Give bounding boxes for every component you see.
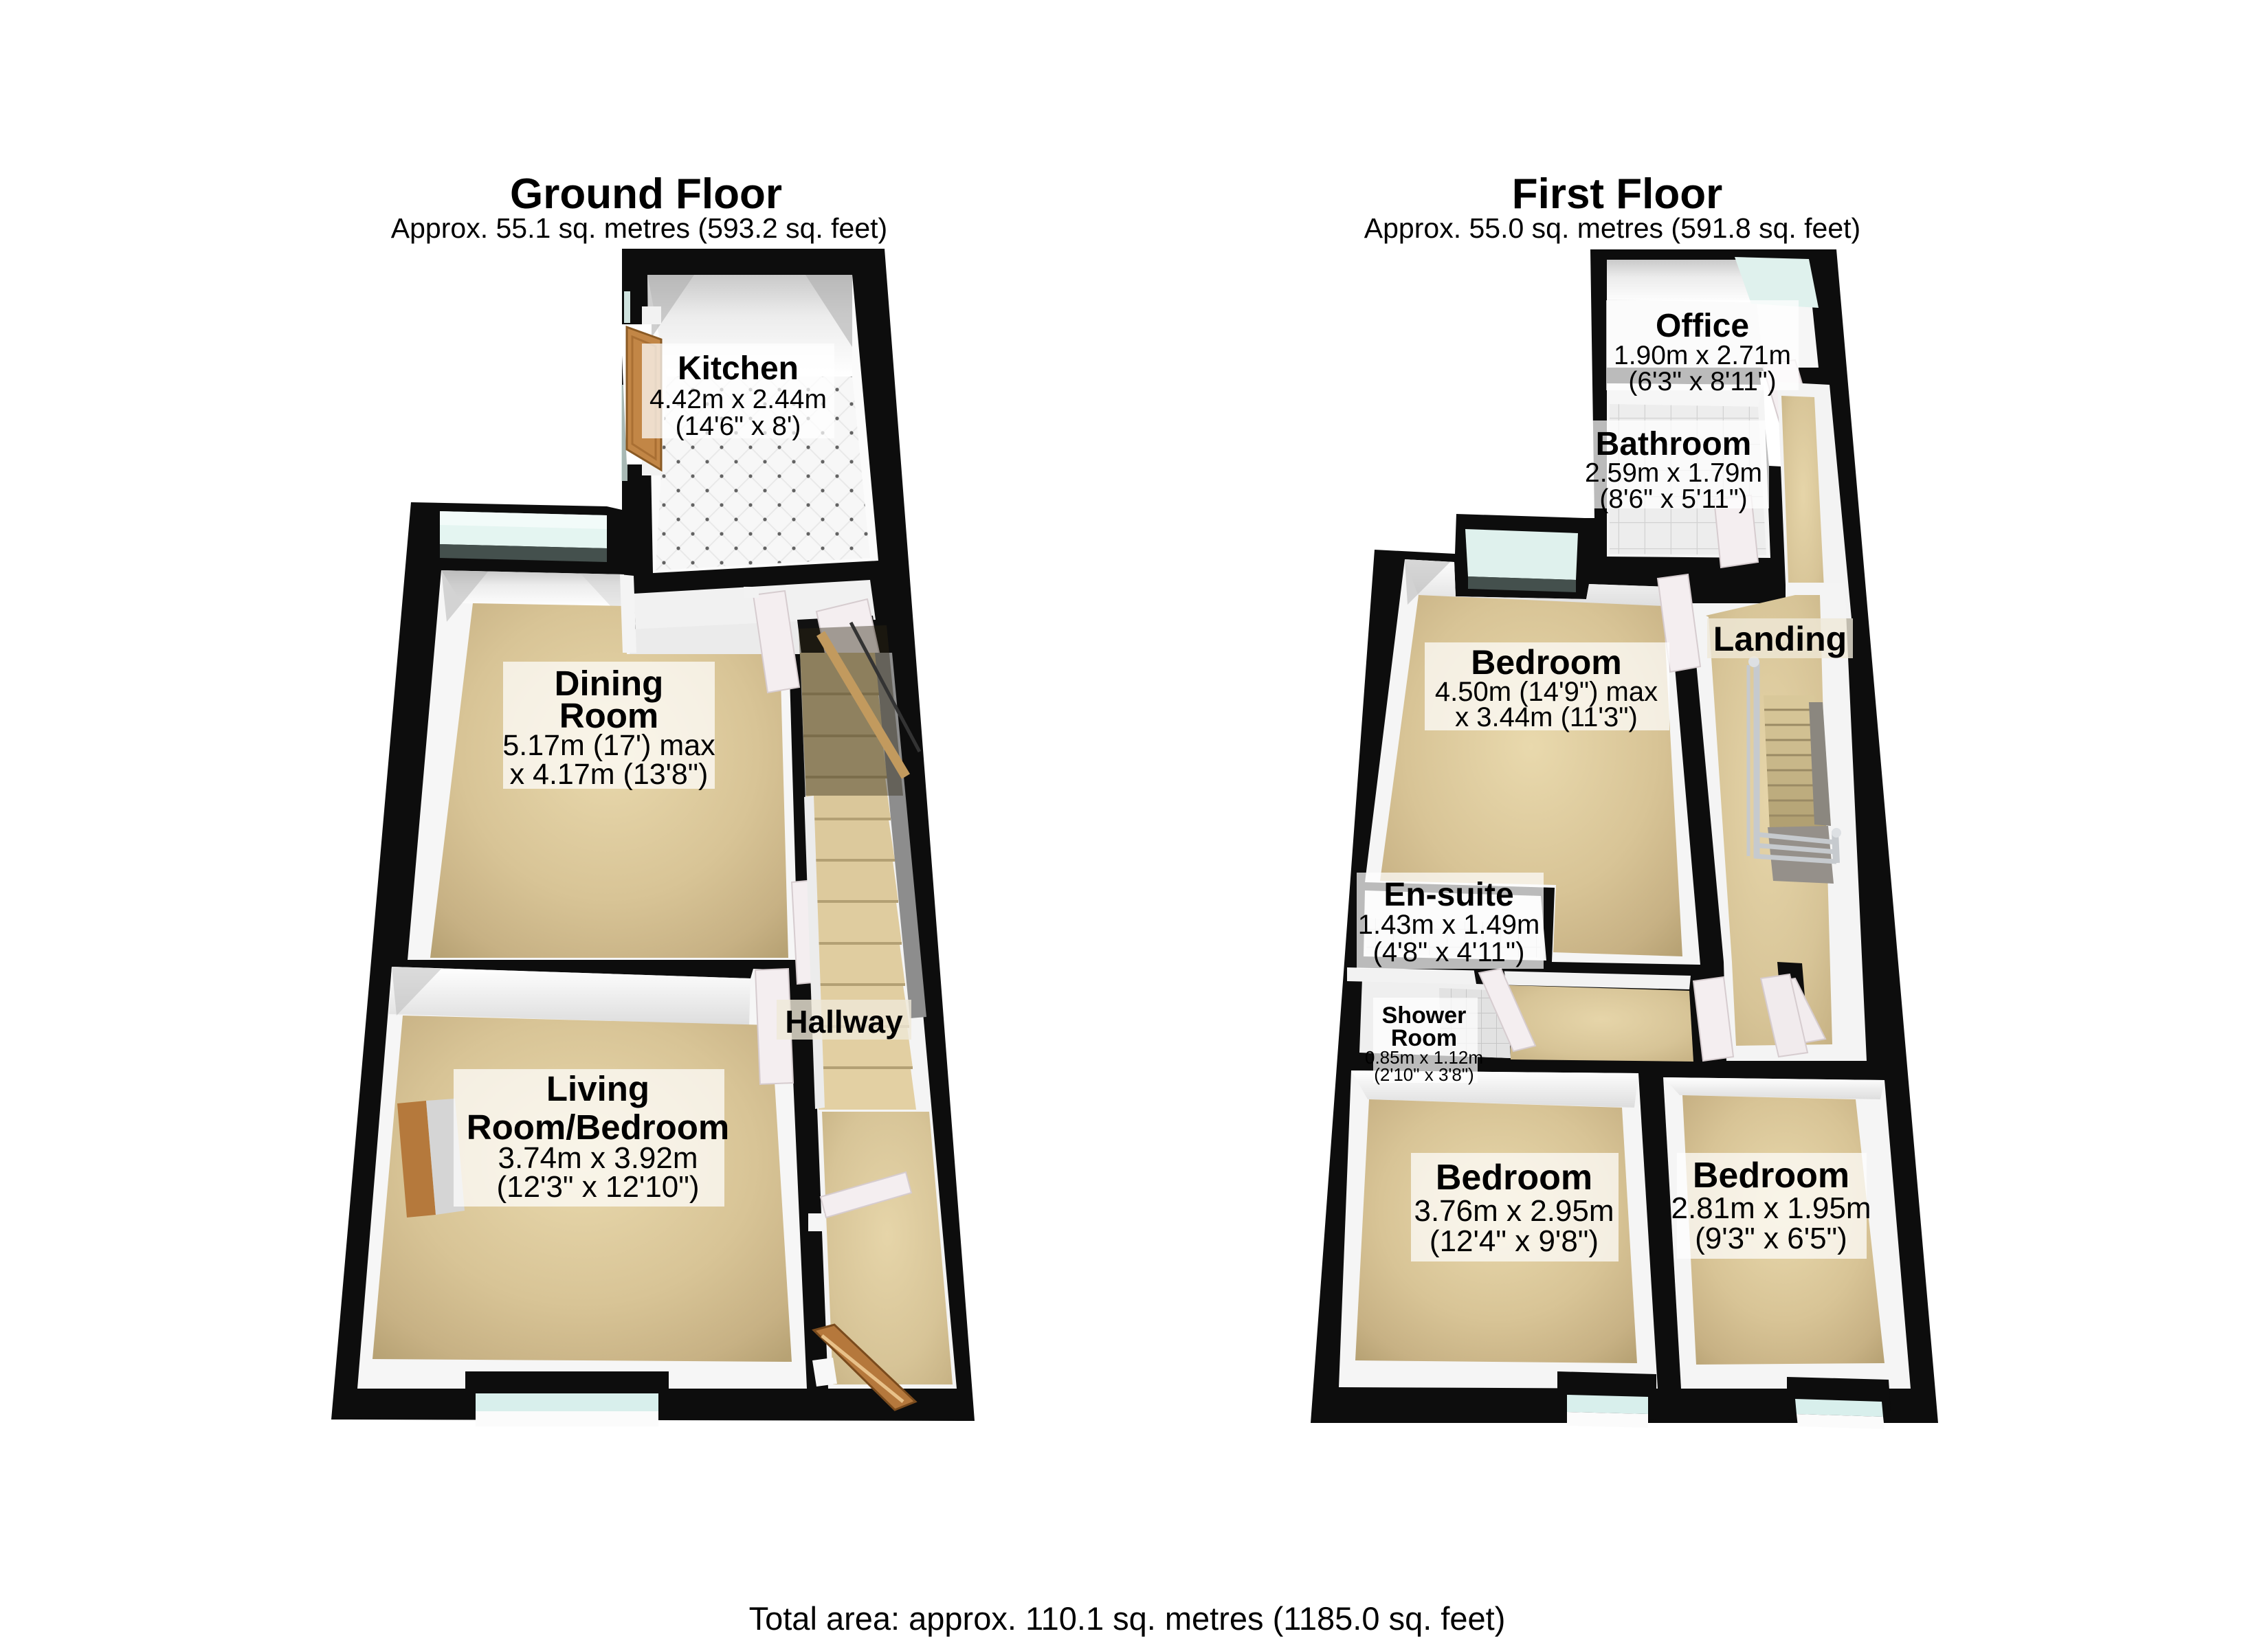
svg-text:2.81m x 1.95m: 2.81m x 1.95m <box>1671 1191 1871 1225</box>
svg-text:Landing: Landing <box>1713 620 1847 658</box>
svg-text:Total area: approx. 110.1 sq.: Total area: approx. 110.1 sq. metres (11… <box>749 1600 1506 1637</box>
svg-text:(14'6" x 8'): (14'6" x 8') <box>676 412 801 441</box>
svg-text:Hallway: Hallway <box>785 1004 903 1040</box>
svg-text:(8'6" x 5'11"): (8'6" x 5'11") <box>1599 484 1747 514</box>
svg-text:4.42m x 2.44m: 4.42m x 2.44m <box>649 385 827 414</box>
svg-text:Kitchen: Kitchen <box>678 350 799 387</box>
svg-text:Bedroom: Bedroom <box>1471 643 1621 682</box>
svg-text:x 4.17m (13'8"): x 4.17m (13'8") <box>510 758 709 791</box>
svg-text:Living: Living <box>546 1069 649 1108</box>
svg-text:Bathroom: Bathroom <box>1596 426 1752 462</box>
svg-text:Bedroom: Bedroom <box>1436 1158 1592 1198</box>
svg-text:1.90m x 2.71m: 1.90m x 2.71m <box>1614 341 1791 370</box>
svg-text:Office: Office <box>1656 308 1749 344</box>
svg-text:2.59m x 1.79m: 2.59m x 1.79m <box>1585 458 1762 488</box>
svg-text:(6'3" x 8'11"): (6'3" x 8'11") <box>1628 367 1776 396</box>
svg-text:(12'3" x 12'10"): (12'3" x 12'10") <box>496 1170 699 1204</box>
svg-text:(4'8" x 4'11"): (4'8" x 4'11") <box>1373 937 1525 967</box>
svg-text:5.17m (17') max: 5.17m (17') max <box>502 729 715 762</box>
svg-text:Approx. 55.0 sq. metres (591.8: Approx. 55.0 sq. metres (591.8 sq. feet) <box>1364 212 1860 244</box>
svg-text:Bedroom: Bedroom <box>1693 1156 1849 1196</box>
svg-text:Approx. 55.1 sq. metres (593.2: Approx. 55.1 sq. metres (593.2 sq. feet) <box>391 212 887 244</box>
svg-text:(12'4" x 9'8"): (12'4" x 9'8") <box>1430 1224 1599 1258</box>
svg-text:(2'10" x 3'8"): (2'10" x 3'8") <box>1374 1064 1474 1085</box>
svg-text:(9'3" x 6'5"): (9'3" x 6'5") <box>1695 1222 1847 1255</box>
svg-text:1.43m x 1.49m: 1.43m x 1.49m <box>1358 910 1540 940</box>
svg-text:x 3.44m (11'3"): x 3.44m (11'3") <box>1455 702 1638 732</box>
svg-text:En-suite: En-suite <box>1383 877 1513 913</box>
svg-text:First Floor: First Floor <box>1512 170 1723 218</box>
svg-text:3.76m x 2.95m: 3.76m x 2.95m <box>1414 1194 1614 1228</box>
svg-text:Ground Floor: Ground Floor <box>510 170 782 218</box>
